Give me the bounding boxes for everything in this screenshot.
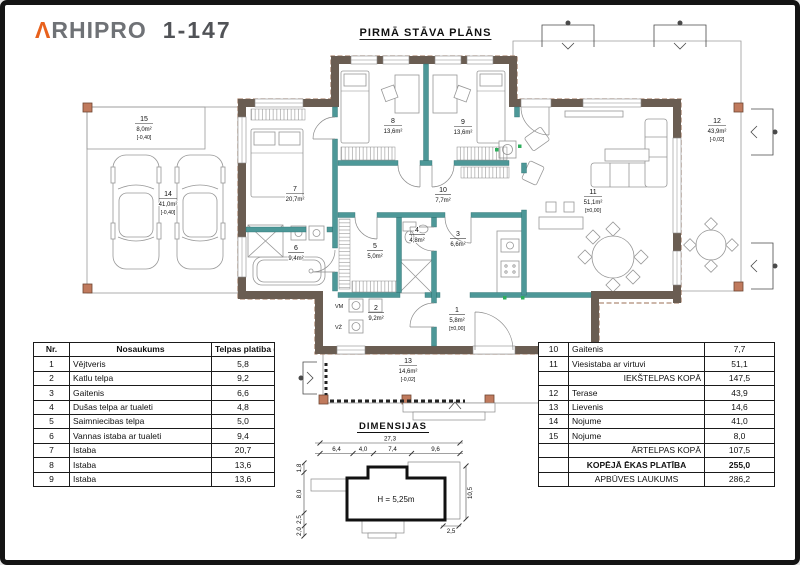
sketch-carport <box>311 479 347 491</box>
svg-text:11: 11 <box>589 189 596 196</box>
svg-text:8: 8 <box>391 118 395 125</box>
svg-text:10,5: 10,5 <box>467 486 474 499</box>
svg-text:4: 4 <box>415 227 419 234</box>
bed <box>341 71 369 143</box>
room-table-right: 10Gaitenis7,7 11Viesistaba ar virtuvi51,… <box>538 342 775 487</box>
svg-text:7,7m²: 7,7m² <box>435 198 450 204</box>
table-row-footprint: APBŪVES LAUKUMS286,2 <box>539 472 775 486</box>
col-header-area: Telpas platiba (m²) <box>212 343 275 357</box>
table-row: 11Viesistaba ar virtuvi51,1 <box>539 357 775 371</box>
svg-text:51,1m²: 51,1m² <box>584 200 603 206</box>
car <box>111 155 161 269</box>
svg-text:20,7m²: 20,7m² <box>286 197 305 203</box>
svg-text:[-0,40]: [-0,40] <box>161 210 176 216</box>
svg-text:9: 9 <box>461 119 465 126</box>
table-row: 1Vējtveris5,8 <box>34 357 275 371</box>
svg-text:10: 10 <box>439 187 447 194</box>
table-row: 10Gaitenis7,7 <box>539 343 775 357</box>
kitchen-counter <box>497 231 525 295</box>
table-row: 2Katlu telpa9,2 <box>34 371 275 385</box>
svg-text:6: 6 <box>294 245 298 252</box>
svg-text:12: 12 <box>713 118 721 125</box>
svg-text:[±0,00]: [±0,00] <box>449 326 465 332</box>
svg-text:[±0,00]: [±0,00] <box>585 208 601 214</box>
svg-text:4,8m²: 4,8m² <box>409 238 424 244</box>
room-label-15: 15 8,0m² [-0,40] <box>135 116 153 141</box>
svg-text:[-0,02]: [-0,02] <box>710 137 725 143</box>
col-header-name: Nosaukums <box>70 343 212 357</box>
dryer <box>349 320 363 333</box>
svg-text:5,0m²: 5,0m² <box>367 254 382 260</box>
desk <box>433 75 457 113</box>
svg-text:5: 5 <box>373 243 377 250</box>
bar-counter <box>539 217 583 229</box>
svg-text:4,0: 4,0 <box>359 446 368 453</box>
svg-text:14,6m²: 14,6m² <box>399 369 418 375</box>
table-row-subtotal: IEKŠTELPAS KOPĀ147,5 <box>539 371 775 385</box>
table-row: 6Vannas istaba ar tualeti9,4 <box>34 429 275 443</box>
entrance-door-opening <box>473 346 515 354</box>
svg-text:13,6m²: 13,6m² <box>384 129 403 135</box>
dryer-label: VŽ <box>335 323 343 331</box>
table-row: 7Istaba20,7 <box>34 443 275 457</box>
svg-text:2,5: 2,5 <box>296 515 303 524</box>
svg-text:9,6: 9,6 <box>431 446 440 453</box>
terrace-door-opening <box>521 99 551 107</box>
svg-text:3: 3 <box>456 231 460 238</box>
table-row: 13Lievenis14,6 <box>539 400 775 414</box>
svg-text:13,6m²: 13,6m² <box>454 130 473 136</box>
svg-text:15: 15 <box>140 116 148 123</box>
svg-text:41,0m²: 41,0m² <box>159 202 178 208</box>
table-row-total: KOPĒJĀ ĒKAS PLATĪBA255,0 <box>539 458 775 472</box>
toilet <box>403 222 416 231</box>
wardrobe <box>461 167 509 178</box>
shelves <box>339 219 350 289</box>
drawing-sheet: ΛRHIPRO1-147 PIRMĀ STĀVA PLĀNS <box>0 0 800 565</box>
sink <box>418 225 428 233</box>
table-row: 14Nojume41,0 <box>539 414 775 428</box>
desk <box>395 75 419 113</box>
terrace-table <box>684 218 739 273</box>
dimension-sketch: DIMENSIJAS H = 5,25m 27,3 6,4 4,0 7,4 9,… <box>296 421 474 539</box>
wardrobe <box>341 147 395 160</box>
svg-text:7,4: 7,4 <box>388 446 397 453</box>
sink <box>309 226 324 240</box>
table-row-subtotal: ĀRTELPAS KOPĀ107,5 <box>539 443 775 457</box>
table-row: 5Saimniecibas telpa5,0 <box>34 414 275 428</box>
building-height: H = 5,25m <box>377 495 414 504</box>
stool <box>546 202 556 212</box>
tv-bench <box>565 111 623 117</box>
svg-text:43,9m²: 43,9m² <box>708 129 727 135</box>
svg-text:6,6m²: 6,6m² <box>450 242 465 248</box>
table-row: 8Istaba13,6 <box>34 458 275 472</box>
washer-label: VM <box>335 304 344 310</box>
svg-text:8,0: 8,0 <box>296 489 303 498</box>
table-row: 15Nojume8,0 <box>539 429 775 443</box>
svg-text:6,4: 6,4 <box>332 446 341 453</box>
svg-text:13: 13 <box>404 358 412 365</box>
table-row: 3Gaitenis6,6 <box>34 386 275 400</box>
room-label-13: 13 14,6m² [-0,02] <box>399 358 418 383</box>
coffee-table <box>605 149 649 161</box>
svg-text:2,0: 2,0 <box>296 527 303 536</box>
dimensions-title: DIMENSIJAS <box>359 421 427 432</box>
svg-text:2,5: 2,5 <box>447 528 456 535</box>
shower <box>399 260 432 293</box>
col-header-nr: Nr. <box>34 343 70 357</box>
svg-text:7: 7 <box>293 186 297 193</box>
stool <box>564 202 574 212</box>
svg-text:1,8: 1,8 <box>296 463 303 472</box>
bed <box>477 71 505 143</box>
svg-text:[-0,02]: [-0,02] <box>401 377 416 383</box>
svg-text:9,4m²: 9,4m² <box>288 256 303 262</box>
wardrobe <box>457 147 507 160</box>
svg-text:1: 1 <box>455 307 459 314</box>
svg-text:2: 2 <box>374 305 378 312</box>
shelves <box>352 281 397 292</box>
svg-text:[-0,40]: [-0,40] <box>137 135 152 141</box>
car <box>175 155 225 269</box>
table-row: 12Terase43,9 <box>539 386 775 400</box>
sketch-porch <box>362 520 404 533</box>
svg-text:8,0m²: 8,0m² <box>136 127 151 133</box>
wardrobe <box>251 109 305 120</box>
room-label-14: 14 41,0m² [-0,40] <box>159 191 178 216</box>
table-header-row: Nr. Nosaukums Telpas platiba (m²) <box>34 343 275 357</box>
room-label-12: 12 43,9m² [-0,02] <box>708 118 727 143</box>
svg-text:9,2m²: 9,2m² <box>368 316 383 322</box>
svg-text:5,8m²: 5,8m² <box>449 318 464 324</box>
room-table-left: Nr. Nosaukums Telpas platiba (m²) 1Vējtv… <box>33 342 275 487</box>
washing-machine <box>349 299 363 312</box>
svg-text:14: 14 <box>164 191 172 198</box>
table-row: 9Istaba13,6 <box>34 472 275 486</box>
table-row: 4Dušas telpa ar tualeti4,8 <box>34 400 275 414</box>
svg-text:27,3: 27,3 <box>384 436 397 443</box>
